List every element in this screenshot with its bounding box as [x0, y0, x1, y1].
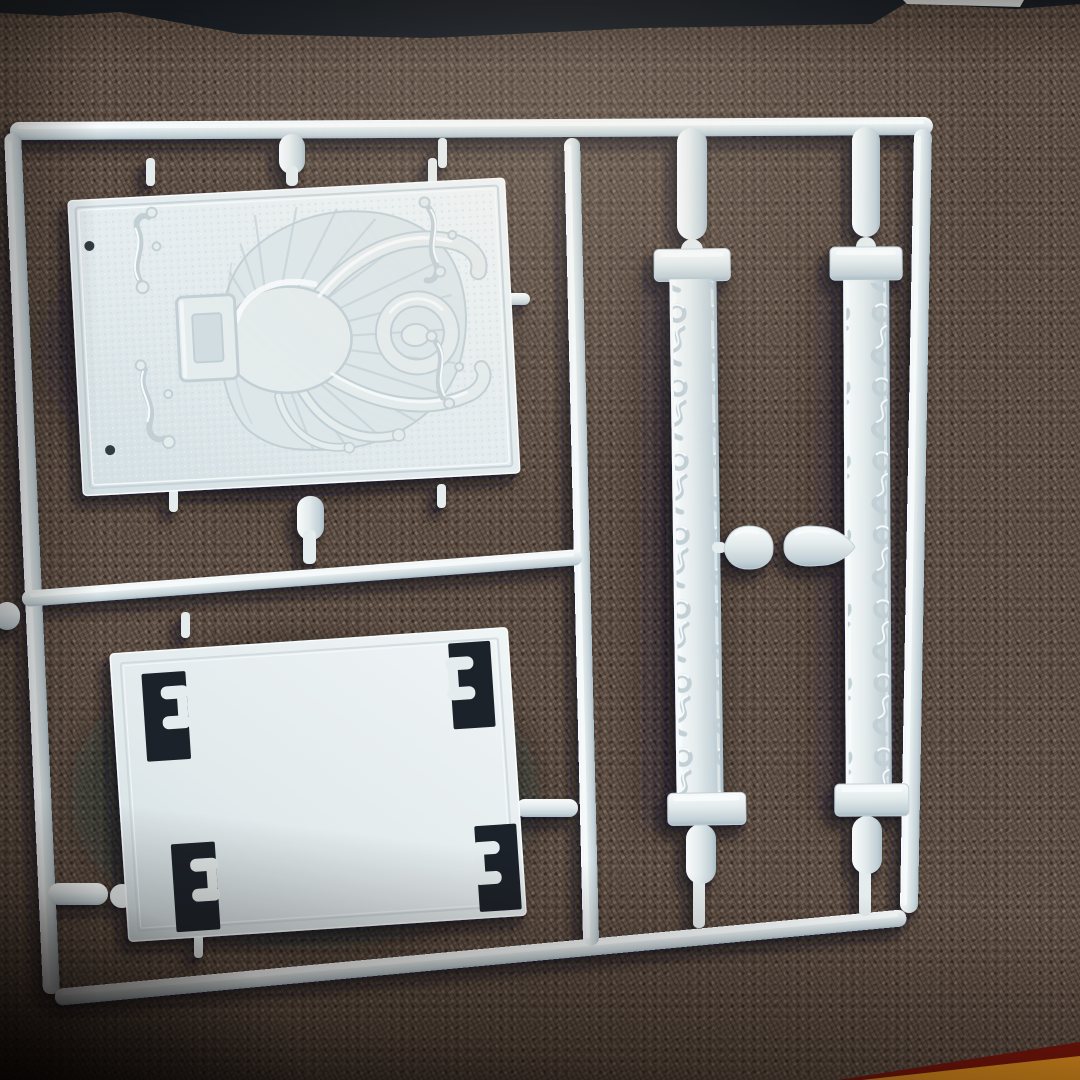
photo-model-kit-sprue — [0, 0, 1080, 1080]
top-edge-shade-overlay — [0, 0, 1080, 1080]
